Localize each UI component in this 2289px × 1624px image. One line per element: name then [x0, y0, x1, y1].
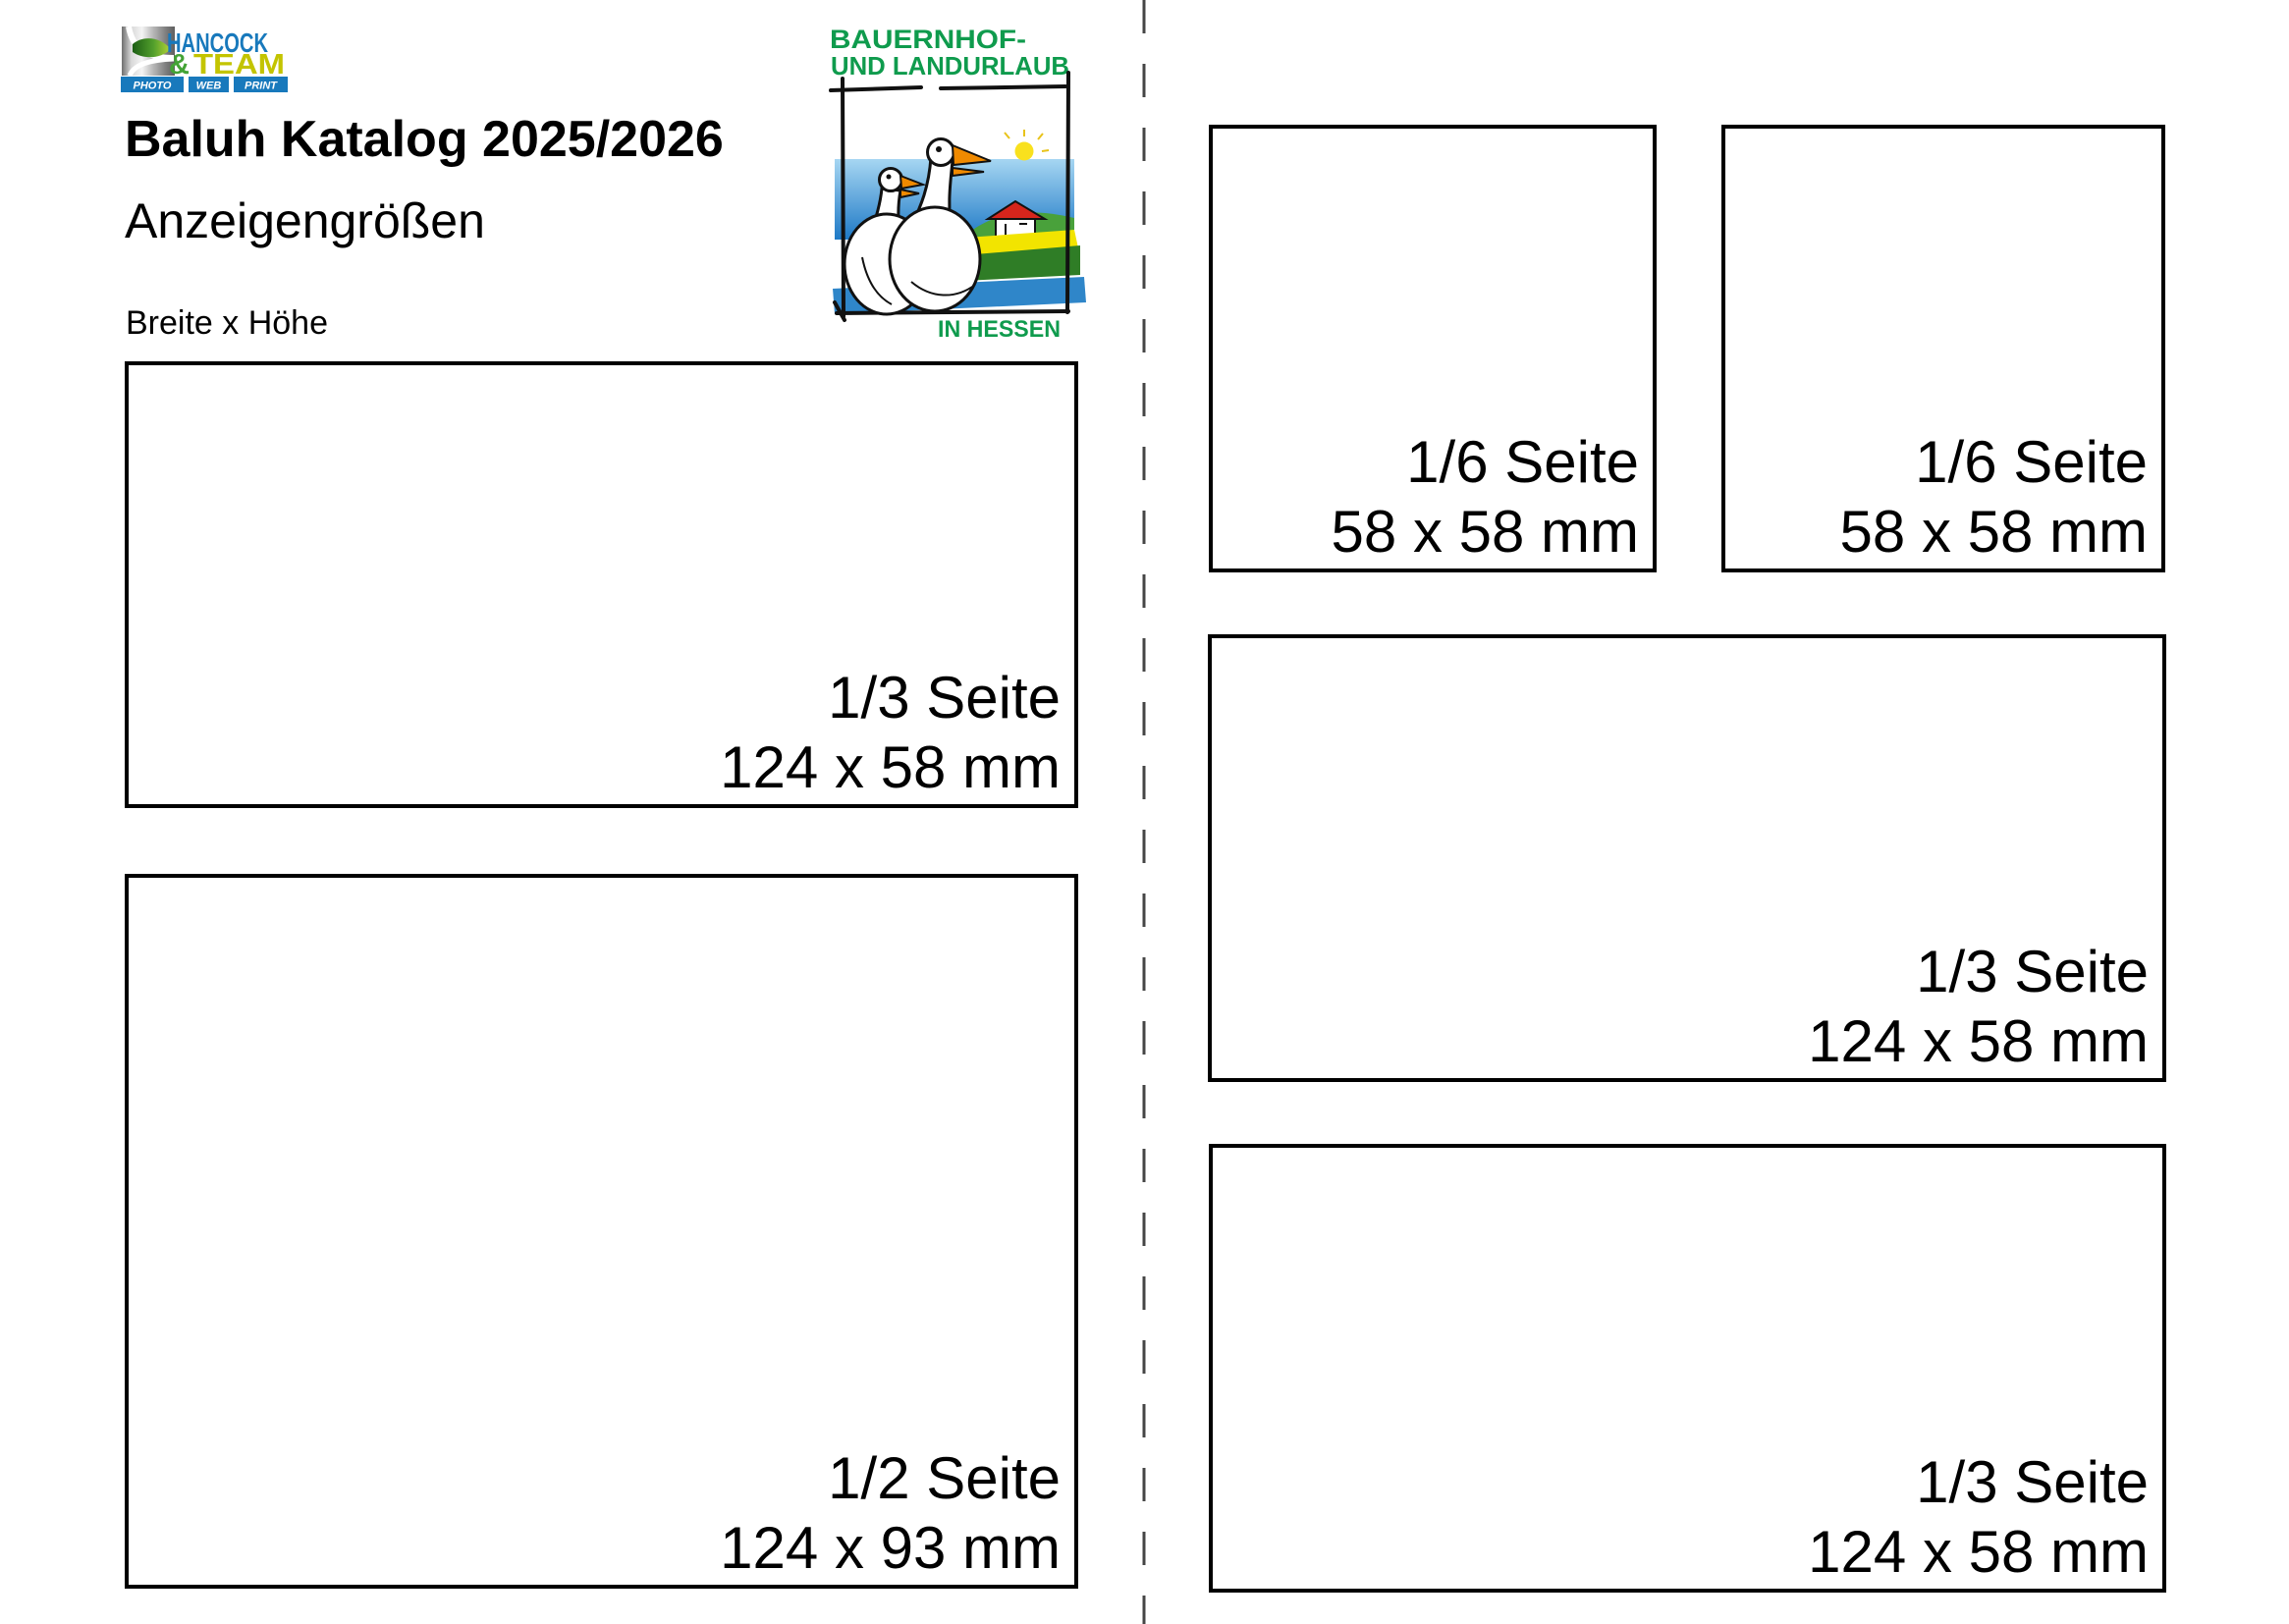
ad-size-dimensions: 124 x 58 mm: [1808, 1517, 2149, 1587]
dashed-divider: [1142, 0, 1146, 1624]
ad-size-dimensions: 124 x 58 mm: [720, 732, 1061, 802]
hancock-logo-services-bar: PHOTO WEB PRINT: [121, 77, 288, 92]
size-note-label: Breite x Höhe: [126, 303, 328, 343]
ad-size-dimensions: 58 x 58 mm: [1840, 497, 2148, 567]
baluh-logo-caption-bottom: IN HESSEN: [938, 316, 1061, 343]
ad-size-label: 1/6 Seite: [1840, 427, 2148, 497]
hancock-service-print: PRINT: [245, 81, 278, 92]
ad-box-1-3-seite-right-top: 1/3 Seite 124 x 58 mm: [1208, 634, 2166, 1082]
media-kit-page: HANCOCK & TEAM PHOTO WEB PRINT Baluh Kat…: [0, 0, 2289, 1624]
ad-size-label: 1/3 Seite: [1808, 1447, 2149, 1517]
ad-size-label: 1/3 Seite: [1808, 937, 2149, 1006]
ad-box-label: 1/2 Seite 124 x 93 mm: [720, 1443, 1061, 1583]
page-title: Baluh Katalog 2025/2026: [125, 110, 724, 169]
ad-size-label: 1/6 Seite: [1332, 427, 1639, 497]
sun-icon: [1005, 130, 1049, 161]
hancock-logo-ampersand: &: [169, 49, 190, 81]
ad-box-1-6-seite-b: 1/6 Seite 58 x 58 mm: [1721, 125, 2165, 572]
ad-size-dimensions: 124 x 93 mm: [720, 1513, 1061, 1583]
baluh-logo-caption-line1: BAUERNHOF-: [830, 25, 1026, 54]
hancock-service-photo: PHOTO: [134, 81, 172, 92]
ad-box-1-3-seite-left: 1/3 Seite 124 x 58 mm: [125, 361, 1078, 808]
ad-size-dimensions: 124 x 58 mm: [1808, 1006, 2149, 1076]
ad-box-1-3-seite-right-bottom: 1/3 Seite 124 x 58 mm: [1209, 1144, 2166, 1593]
ad-box-label: 1/3 Seite 124 x 58 mm: [1808, 937, 2149, 1076]
ad-box-1-2-seite: 1/2 Seite 124 x 93 mm: [125, 874, 1078, 1589]
baluh-logo-caption-line2: UND LANDURLAUB: [831, 51, 1069, 81]
hancock-team-logo: HANCOCK & TEAM PHOTO WEB PRINT: [121, 23, 288, 93]
hancock-logo-name2: TEAM: [193, 49, 285, 81]
page-subtitle: Anzeigengrößen: [125, 192, 485, 249]
ad-size-dimensions: 58 x 58 mm: [1332, 497, 1639, 567]
ad-box-label: 1/3 Seite 124 x 58 mm: [720, 663, 1061, 802]
ad-size-label: 1/3 Seite: [720, 663, 1061, 732]
baluh-logo: BAUERNHOF- UND LANDURLAUB: [823, 12, 1092, 350]
hancock-service-web: WEB: [196, 81, 222, 92]
ad-size-label: 1/2 Seite: [720, 1443, 1061, 1513]
ad-box-1-6-seite-a: 1/6 Seite 58 x 58 mm: [1209, 125, 1657, 572]
ad-box-label: 1/3 Seite 124 x 58 mm: [1808, 1447, 2149, 1587]
ad-box-label: 1/6 Seite 58 x 58 mm: [1840, 427, 2148, 567]
ad-box-label: 1/6 Seite 58 x 58 mm: [1332, 427, 1639, 567]
